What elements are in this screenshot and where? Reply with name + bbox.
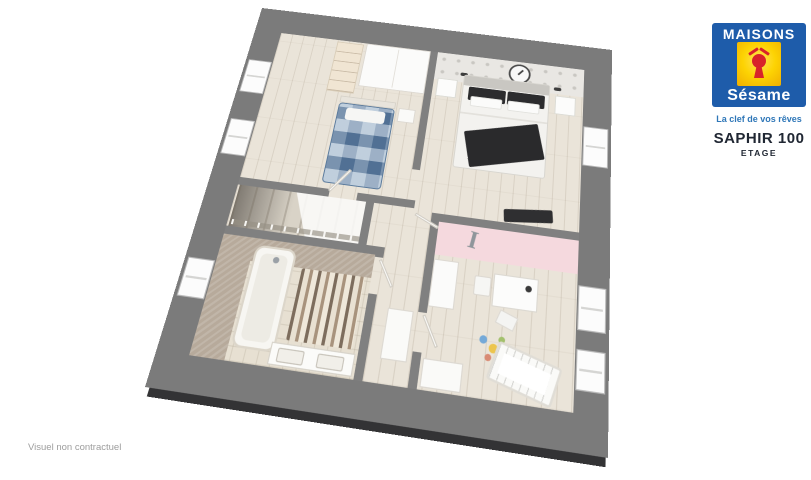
keyhole-icon: [737, 42, 781, 86]
logo-tagline: La clef de vos rêves: [698, 114, 811, 124]
desk-item: [525, 285, 532, 292]
desk-chair: [473, 275, 492, 297]
bedside-table: [397, 108, 416, 124]
clock-hand: [517, 70, 523, 75]
dark-throw-blanket: [464, 124, 545, 167]
bedroom-bench: [504, 209, 553, 224]
maisons-sesame-logo: MAISONS Sésame: [712, 23, 806, 107]
wardrobe: [358, 44, 431, 95]
window-mullion: [247, 75, 265, 79]
page: I: [0, 0, 811, 480]
disclaimer-text: Visuel non contractuel: [28, 442, 121, 453]
logo-maisons-text: MAISONS: [712, 26, 806, 42]
nightstand: [435, 78, 458, 98]
logo-sesame-text: Sésame: [712, 87, 806, 105]
window-mullion: [228, 135, 247, 139]
window-mullion: [586, 145, 605, 149]
nightstand: [554, 96, 576, 117]
sink: [315, 353, 344, 372]
plan-title: SAPHIR 100: [698, 130, 811, 147]
window-mullion: [581, 307, 603, 312]
kids-dresser: [419, 358, 463, 394]
plan-subtitle: ETAGE: [698, 148, 811, 158]
double-bed: [452, 74, 550, 179]
wardrobe-door-split: [391, 50, 399, 88]
pillow: [344, 107, 386, 124]
window-mullion: [579, 369, 602, 375]
window-mullion: [185, 275, 206, 280]
window: [582, 126, 608, 168]
floorplan-3d-view: I: [142, 8, 612, 468]
sink: [275, 347, 305, 365]
window: [575, 349, 605, 395]
window: [577, 285, 606, 334]
kids-desk: [491, 273, 539, 312]
wall-letter-decor: I: [464, 227, 481, 257]
